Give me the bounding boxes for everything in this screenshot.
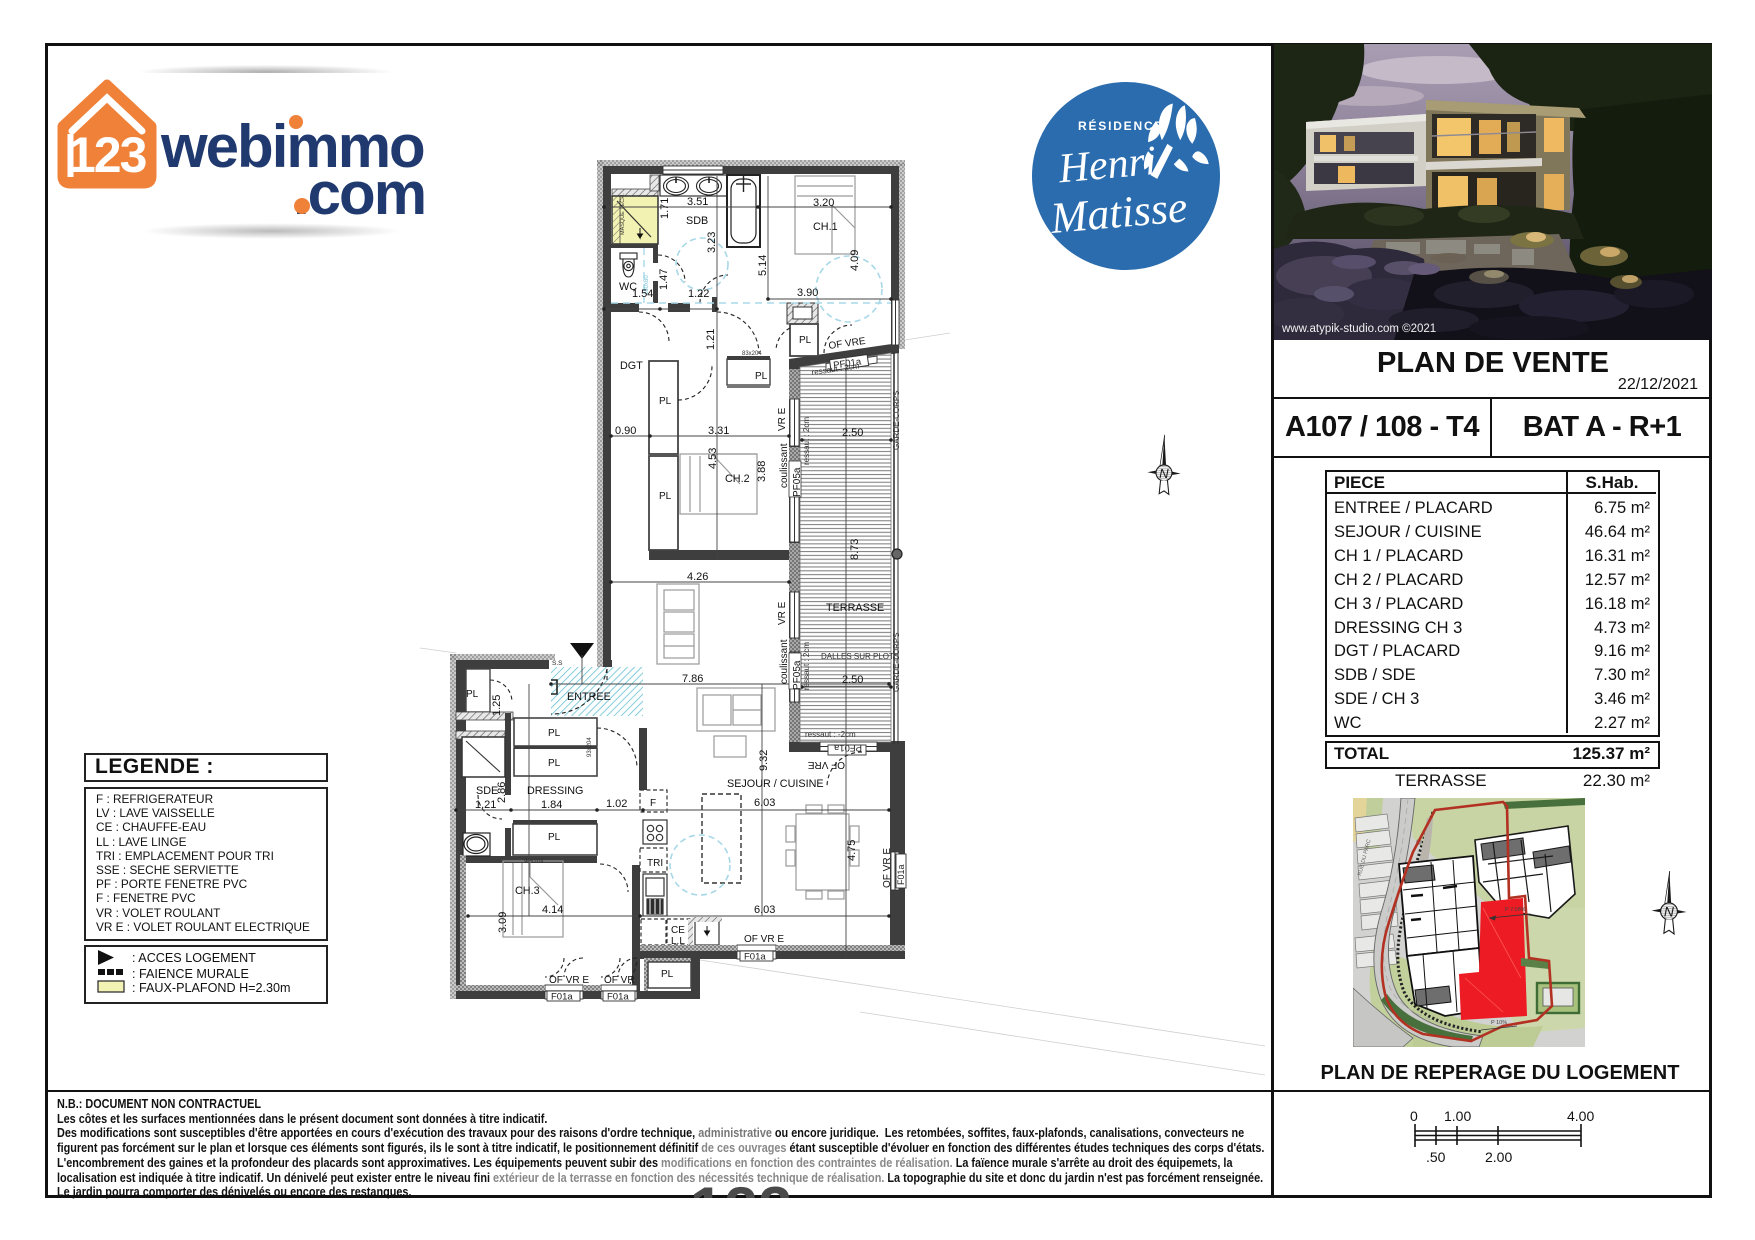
svg-text:PL: PL: [755, 371, 768, 382]
svg-text:.50: .50: [1426, 1149, 1446, 1165]
svg-text:1.84: 1.84: [541, 799, 562, 811]
svg-text:1.71: 1.71: [659, 198, 671, 219]
svg-text:F01a: F01a: [607, 992, 629, 1003]
svg-text:3.23: 3.23: [706, 232, 718, 253]
svg-text:CH.3: CH.3: [515, 885, 540, 897]
svg-text:2.00: 2.00: [1485, 1149, 1512, 1165]
svg-text:83x204: 83x204: [742, 351, 762, 357]
svg-text:SDE: SDE: [476, 785, 498, 797]
svg-text:6.03: 6.03: [754, 797, 775, 809]
svg-text:L.L: L.L: [671, 936, 685, 947]
svg-text:123: 123: [68, 127, 146, 183]
svg-text:OF VR: OF VR: [604, 975, 635, 986]
svg-text:OF VR E: OF VR E: [549, 975, 589, 986]
svg-text:4.14: 4.14: [542, 904, 563, 916]
svg-text:ressaut : 2cm: ressaut : 2cm: [802, 642, 811, 690]
svg-text:4.26: 4.26: [687, 571, 708, 583]
svg-text:9.32: 9.32: [758, 750, 770, 771]
svg-text:PL: PL: [659, 491, 672, 502]
svg-text:0.90: 0.90: [615, 425, 636, 437]
svg-text:PF01a: PF01a: [833, 742, 862, 753]
svg-text:PL: PL: [548, 832, 561, 843]
svg-text:PL: PL: [466, 689, 479, 700]
svg-text:TERRASSE: TERRASSE: [826, 602, 884, 614]
svg-text:4.00: 4.00: [1567, 1110, 1594, 1124]
svg-text:F01a: F01a: [744, 952, 766, 963]
svg-text:PL: PL: [548, 758, 561, 769]
svg-text:coulissant: coulissant: [779, 639, 790, 684]
svg-text:8.73: 8.73: [849, 539, 861, 560]
svg-text:7.86: 7.86: [682, 673, 703, 685]
svg-text:1.47: 1.47: [658, 269, 670, 290]
svg-text:CH.1: CH.1: [813, 221, 838, 233]
svg-text:1.25: 1.25: [491, 695, 503, 716]
svg-text:F: F: [650, 798, 656, 809]
svg-text:: ACCES LOGEMENT: : ACCES LOGEMENT: [132, 951, 256, 965]
svg-text:F01a: F01a: [896, 864, 906, 885]
svg-text:4.09: 4.09: [849, 250, 861, 271]
svg-text:3.31: 3.31: [708, 425, 729, 437]
svg-text:: FAIENCE MURALE: : FAIENCE MURALE: [132, 967, 249, 981]
svg-text:S.S: S.S: [552, 660, 563, 667]
svg-text:OF VR E: OF VR E: [744, 934, 784, 945]
svg-text:OF VRE: OF VRE: [807, 759, 845, 770]
svg-text:MASQUE TECH.: MASQUE TECH.: [620, 193, 626, 235]
svg-text:PL: PL: [659, 396, 672, 407]
svg-text:ressaut : -2cm: ressaut : -2cm: [805, 730, 856, 739]
svg-text:VR E: VR E: [777, 601, 788, 625]
svg-text:www.atypik-studio.com ©2021: www.atypik-studio.com ©2021: [1281, 323, 1436, 335]
svg-text:coulissant: coulissant: [779, 443, 790, 488]
svg-text:ressaut : 2cm: ressaut : 2cm: [802, 417, 811, 465]
svg-text:SEJOUR / CUISINE: SEJOUR / CUISINE: [727, 778, 824, 790]
svg-text:VR E: VR E: [777, 407, 788, 431]
svg-text:CH.2: CH.2: [725, 473, 750, 485]
svg-text:PL: PL: [661, 969, 674, 980]
svg-text:3.90: 3.90: [797, 287, 818, 299]
svg-text:GARDE-CORPS: GARDE-CORPS: [892, 632, 901, 692]
svg-text:ENTREE: ENTREE: [567, 691, 611, 703]
svg-text:OF VR E: OF VR E: [882, 848, 893, 888]
svg-text:P 10%: P 10%: [1491, 1020, 1507, 1026]
svg-text:PL: PL: [799, 335, 812, 346]
svg-text:1.00: 1.00: [1444, 1110, 1471, 1124]
svg-text:4.75: 4.75: [846, 840, 858, 861]
svg-text:DRESSING: DRESSING: [527, 785, 583, 797]
svg-text:1.21: 1.21: [475, 799, 496, 811]
svg-text:93x204: 93x204: [587, 737, 593, 757]
svg-text:6.03: 6.03: [754, 904, 775, 916]
svg-text:N: N: [1664, 903, 1675, 919]
svg-text:TRI: TRI: [647, 858, 663, 869]
svg-text:3.88: 3.88: [756, 461, 768, 482]
svg-text:3.51: 3.51: [687, 196, 708, 208]
svg-text:4.53: 4.53: [707, 448, 719, 469]
svg-text:2.50: 2.50: [842, 427, 863, 439]
svg-text:1.21: 1.21: [705, 329, 717, 350]
svg-text:P 7.08%: P 7.08%: [1505, 907, 1526, 913]
svg-text:3.09: 3.09: [497, 912, 509, 933]
svg-text:PL: PL: [548, 728, 561, 739]
svg-text:DALLES SUR PLOTS: DALLES SUR PLOTS: [821, 652, 899, 661]
svg-text:SDB: SDB: [686, 215, 708, 227]
svg-text:DGT: DGT: [620, 360, 643, 372]
svg-text:1.22: 1.22: [688, 288, 709, 300]
svg-text:F01a: F01a: [551, 992, 573, 1003]
svg-text:3.20: 3.20: [813, 197, 834, 209]
svg-text:CE: CE: [671, 925, 685, 936]
svg-text:GARDE-CORPS: GARDE-CORPS: [892, 390, 901, 450]
svg-text:0: 0: [1410, 1110, 1418, 1124]
svg-text:1.02: 1.02: [606, 798, 627, 810]
svg-text:90x204: 90x204: [524, 859, 544, 865]
svg-text:5.14: 5.14: [757, 255, 769, 276]
svg-text:2.50: 2.50: [842, 674, 863, 686]
svg-text:PF05a: PF05a: [792, 467, 803, 497]
svg-text:WC: WC: [619, 281, 637, 293]
svg-text:: FAUX-PLAFOND H=2.30m: : FAUX-PLAFOND H=2.30m: [132, 981, 291, 995]
